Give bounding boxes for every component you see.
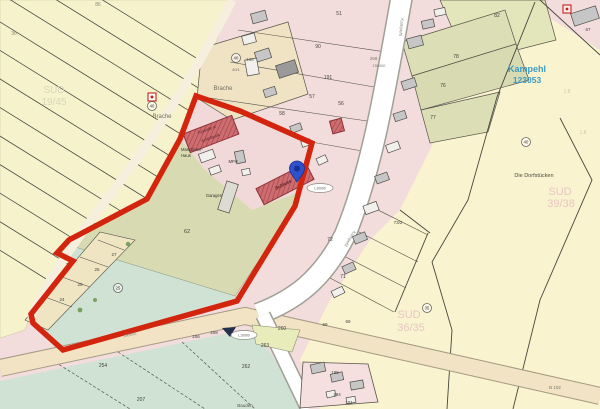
cadastral-map-view[interactable]: BracheBracheDie DorfstückenSUD39/38SUD36…	[0, 0, 600, 409]
map-label: 73/2	[394, 220, 403, 225]
map-label: 194	[333, 392, 341, 397]
map-label: SUD	[548, 186, 571, 198]
map-label: MFH	[228, 159, 237, 164]
map-label: 40/1	[232, 67, 241, 72]
map-label: 1.8	[580, 130, 587, 136]
map-label: Die Dorfstücken	[514, 173, 553, 179]
circled-marker-number: 40	[234, 56, 239, 61]
map-label: 90	[315, 44, 321, 50]
map-label: 206	[192, 334, 200, 339]
map-label: 76	[440, 83, 446, 89]
map-label: 69	[345, 319, 351, 324]
locality-code: 123053	[513, 75, 542, 85]
road-badge-label: L10000	[314, 186, 325, 190]
map-label: SUD	[43, 85, 64, 96]
map-label: 26	[94, 267, 100, 272]
locality-label: Kampehl	[508, 64, 546, 74]
map-label: 51	[336, 11, 342, 17]
monument-icon	[148, 93, 156, 101]
building	[241, 168, 250, 176]
map-label: 268 -	[370, 56, 381, 61]
map-label: 71	[340, 274, 346, 280]
monument-icon-ne	[563, 5, 571, 13]
road-badge-label: L10000	[238, 333, 249, 337]
map-label: Haus	[181, 153, 191, 158]
building-landmark-small	[330, 118, 345, 134]
map-label: 82	[494, 13, 500, 19]
map-label: 39/38	[547, 198, 575, 210]
map-label: Bauden	[237, 403, 253, 408]
map-label: 72	[327, 237, 333, 243]
map-label: 158	[246, 57, 254, 62]
map-label: 78	[453, 54, 459, 60]
map-label: 19/45	[41, 97, 66, 108]
map-label: 67	[585, 27, 591, 32]
circled-marker-number: 40	[524, 140, 529, 145]
map-label: 77	[430, 115, 436, 121]
map-label: 58	[279, 111, 285, 117]
map-label: Brache	[152, 114, 172, 120]
map-label: 25	[77, 282, 83, 287]
map-label: 263	[261, 343, 270, 349]
circled-marker-number: 35	[425, 306, 430, 311]
map-label: 56	[338, 101, 344, 107]
map-label: 262	[242, 364, 251, 370]
cadastral-map[interactable]: BracheBracheDie DorfstückenSUD39/38SUD36…	[0, 0, 600, 409]
map-label: 24	[59, 297, 65, 302]
map-label: 36/35	[397, 322, 425, 334]
map-label: Garagen	[206, 193, 223, 198]
circled-marker-number: 40	[150, 104, 155, 109]
map-label: 68	[322, 322, 328, 327]
map-label: B 102	[549, 385, 561, 390]
map-label: Maschinen-	[181, 147, 203, 152]
map-label: 57	[309, 94, 315, 100]
map-label: 101	[345, 400, 353, 405]
map-label: 1.8	[564, 89, 571, 95]
map-label: 191	[324, 75, 333, 81]
map-label: 260	[278, 326, 287, 332]
map-label: 27	[111, 252, 117, 257]
circled-marker-number: 25	[116, 286, 121, 291]
map-label: 207	[137, 397, 146, 403]
map-label: SUD	[397, 309, 420, 321]
map-label: 208	[210, 330, 218, 335]
map-label: 62	[184, 229, 190, 235]
map-label: 254	[99, 363, 108, 369]
map-label: 36	[11, 31, 17, 37]
map-label: 195	[331, 370, 339, 375]
map-label: Brache	[213, 86, 233, 92]
map-label: 86	[95, 2, 101, 8]
map-label: 150000	[373, 64, 386, 68]
